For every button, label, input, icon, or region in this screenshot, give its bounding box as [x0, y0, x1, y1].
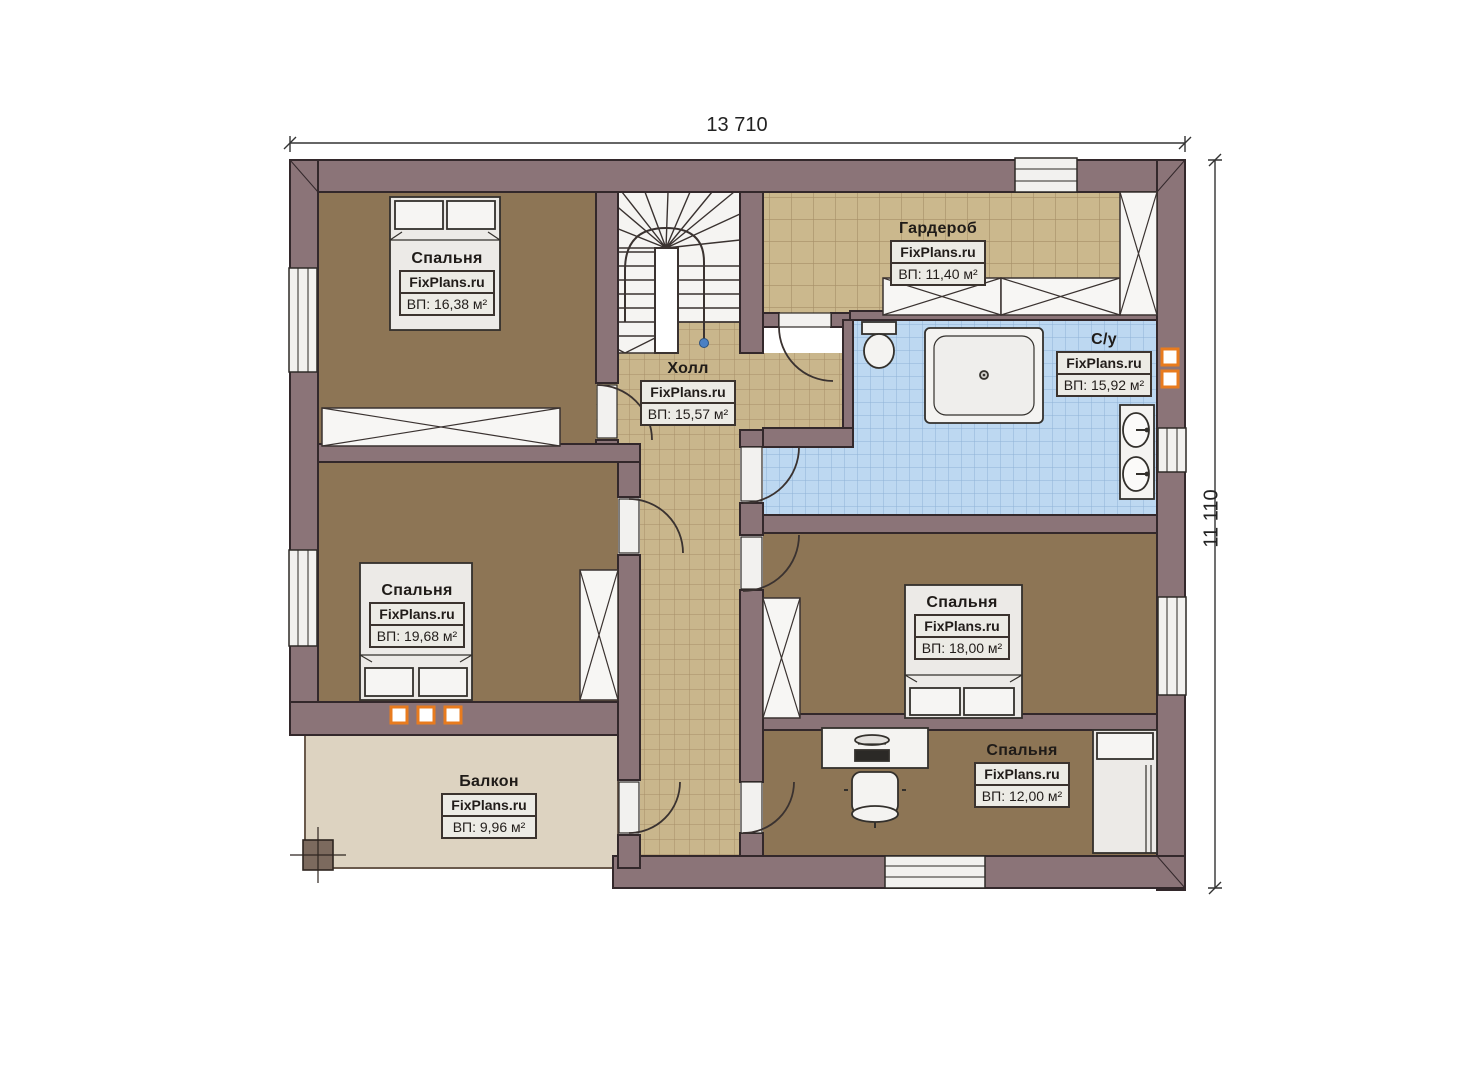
wall-corridor-right-b — [740, 503, 763, 535]
watermark-fixplans: FixPlans.ru — [371, 604, 463, 626]
room-name-hall: Холл — [618, 360, 758, 378]
watermark-fixplans: FixPlans.ru — [443, 795, 535, 817]
wall-left — [290, 160, 318, 735]
room-label-bedroom-bottom-right: FixPlans.ru ВП: 12,00 м² — [974, 762, 1070, 808]
dimension-height-label: 11 110 — [1201, 464, 1224, 574]
floor-plan-drawing — [0, 0, 1473, 1080]
sink-counter — [1120, 405, 1154, 499]
room-area-bathroom: ВП: 15,92 м² — [1058, 375, 1150, 395]
wall-corridor-left-b — [618, 555, 640, 780]
threshold-bedroom-br — [741, 782, 762, 833]
watermark-fixplans: FixPlans.ru — [642, 382, 734, 404]
room-area-wardrobe: ВП: 11,40 м² — [892, 264, 984, 284]
room-name-bedroom-bottom-right: Спальня — [952, 742, 1092, 760]
wall-right — [1157, 160, 1185, 890]
room-label-balcony: FixPlans.ru ВП: 9,96 м² — [441, 793, 537, 839]
wall-corridor-right-a — [740, 430, 763, 447]
room-label-wardrobe: FixPlans.ru ВП: 11,40 м² — [890, 240, 986, 286]
wall-corridor-right-c — [740, 590, 763, 782]
wall-stairs-left-upper — [596, 192, 618, 383]
window-bathroom-right — [1158, 428, 1186, 472]
wall-bath-left — [843, 320, 853, 430]
closet-wardrobe-right — [1120, 192, 1157, 315]
window-wardrobe-top — [1015, 158, 1077, 192]
stair-marker-dot — [700, 339, 709, 348]
threshold-wardrobe — [779, 313, 831, 327]
room-label-bathroom: FixPlans.ru ВП: 15,92 м² — [1056, 351, 1152, 397]
room-label-bedroom-mid-right: FixPlans.ru ВП: 18,00 м² — [914, 614, 1010, 660]
room-label-hall: FixPlans.ru ВП: 15,57 м² — [640, 380, 736, 426]
room-area-bedroom-bottom-right: ВП: 12,00 м² — [976, 786, 1068, 806]
window-bedroom-tl — [289, 268, 317, 372]
room-name-wardrobe: Гардероб — [868, 220, 1008, 238]
floor-plan-page: 13 710 11 110 Спальня FixPlans.ru ВП: 16… — [0, 0, 1473, 1080]
closet-wardrobe-b — [1001, 278, 1120, 315]
closet-bedroom-mr — [763, 598, 800, 718]
wall-corridor-right-d — [740, 833, 763, 856]
room-area-balcony: ВП: 9,96 м² — [443, 817, 535, 837]
window-bedroom-br-bottom — [885, 856, 985, 888]
room-area-hall: ВП: 15,57 м² — [642, 404, 734, 424]
watermark-fixplans: FixPlans.ru — [401, 272, 493, 294]
wall-corridor-left-a — [618, 462, 640, 497]
closet-bedroom-ml — [580, 570, 618, 700]
room-name-bedroom-top-left: Спальня — [377, 250, 517, 268]
threshold-bedroom-mr — [741, 537, 762, 589]
toilet — [862, 322, 896, 368]
threshold-bedroom-tl — [597, 385, 617, 438]
window-bedroom-mr-right — [1158, 597, 1186, 695]
watermark-fixplans: FixPlans.ru — [892, 242, 984, 264]
bed-bedroom-br — [1093, 730, 1157, 853]
threshold-bedroom-ml — [619, 499, 639, 553]
room-label-bedroom-mid-left: FixPlans.ru ВП: 19,68 м² — [369, 602, 465, 648]
watermark-fixplans: FixPlans.ru — [916, 616, 1008, 638]
room-label-bedroom-top-left: FixPlans.ru ВП: 16,38 м² — [399, 270, 495, 316]
watermark-fixplans: FixPlans.ru — [976, 764, 1068, 786]
room-area-bedroom-top-left: ВП: 16,38 м² — [401, 294, 493, 314]
desk — [822, 728, 928, 768]
shower-tray — [925, 328, 1043, 423]
wall-hall-bath — [763, 428, 853, 447]
wall-corridor-left-c — [618, 835, 640, 868]
wall-wardrobe-door-left — [763, 313, 779, 327]
room-area-bedroom-mid-left: ВП: 19,68 м² — [371, 626, 463, 646]
wall-stairs-right — [740, 192, 763, 353]
window-bedroom-ml — [289, 550, 317, 646]
room-name-bedroom-mid-left: Спальня — [347, 582, 487, 600]
room-area-bedroom-mid-right: ВП: 18,00 м² — [916, 638, 1008, 658]
closet-bedroom-tl — [322, 408, 560, 446]
watermark-fixplans: FixPlans.ru — [1058, 353, 1150, 375]
threshold-bathroom — [741, 447, 762, 501]
wall-bath-bottom — [763, 515, 1157, 533]
room-name-bedroom-mid-right: Спальня — [892, 594, 1032, 612]
threshold-balcony — [619, 782, 639, 833]
room-name-balcony: Балкон — [419, 773, 559, 791]
dimension-width-label: 13 710 — [682, 114, 792, 137]
room-name-bathroom: С/у — [1034, 331, 1174, 349]
